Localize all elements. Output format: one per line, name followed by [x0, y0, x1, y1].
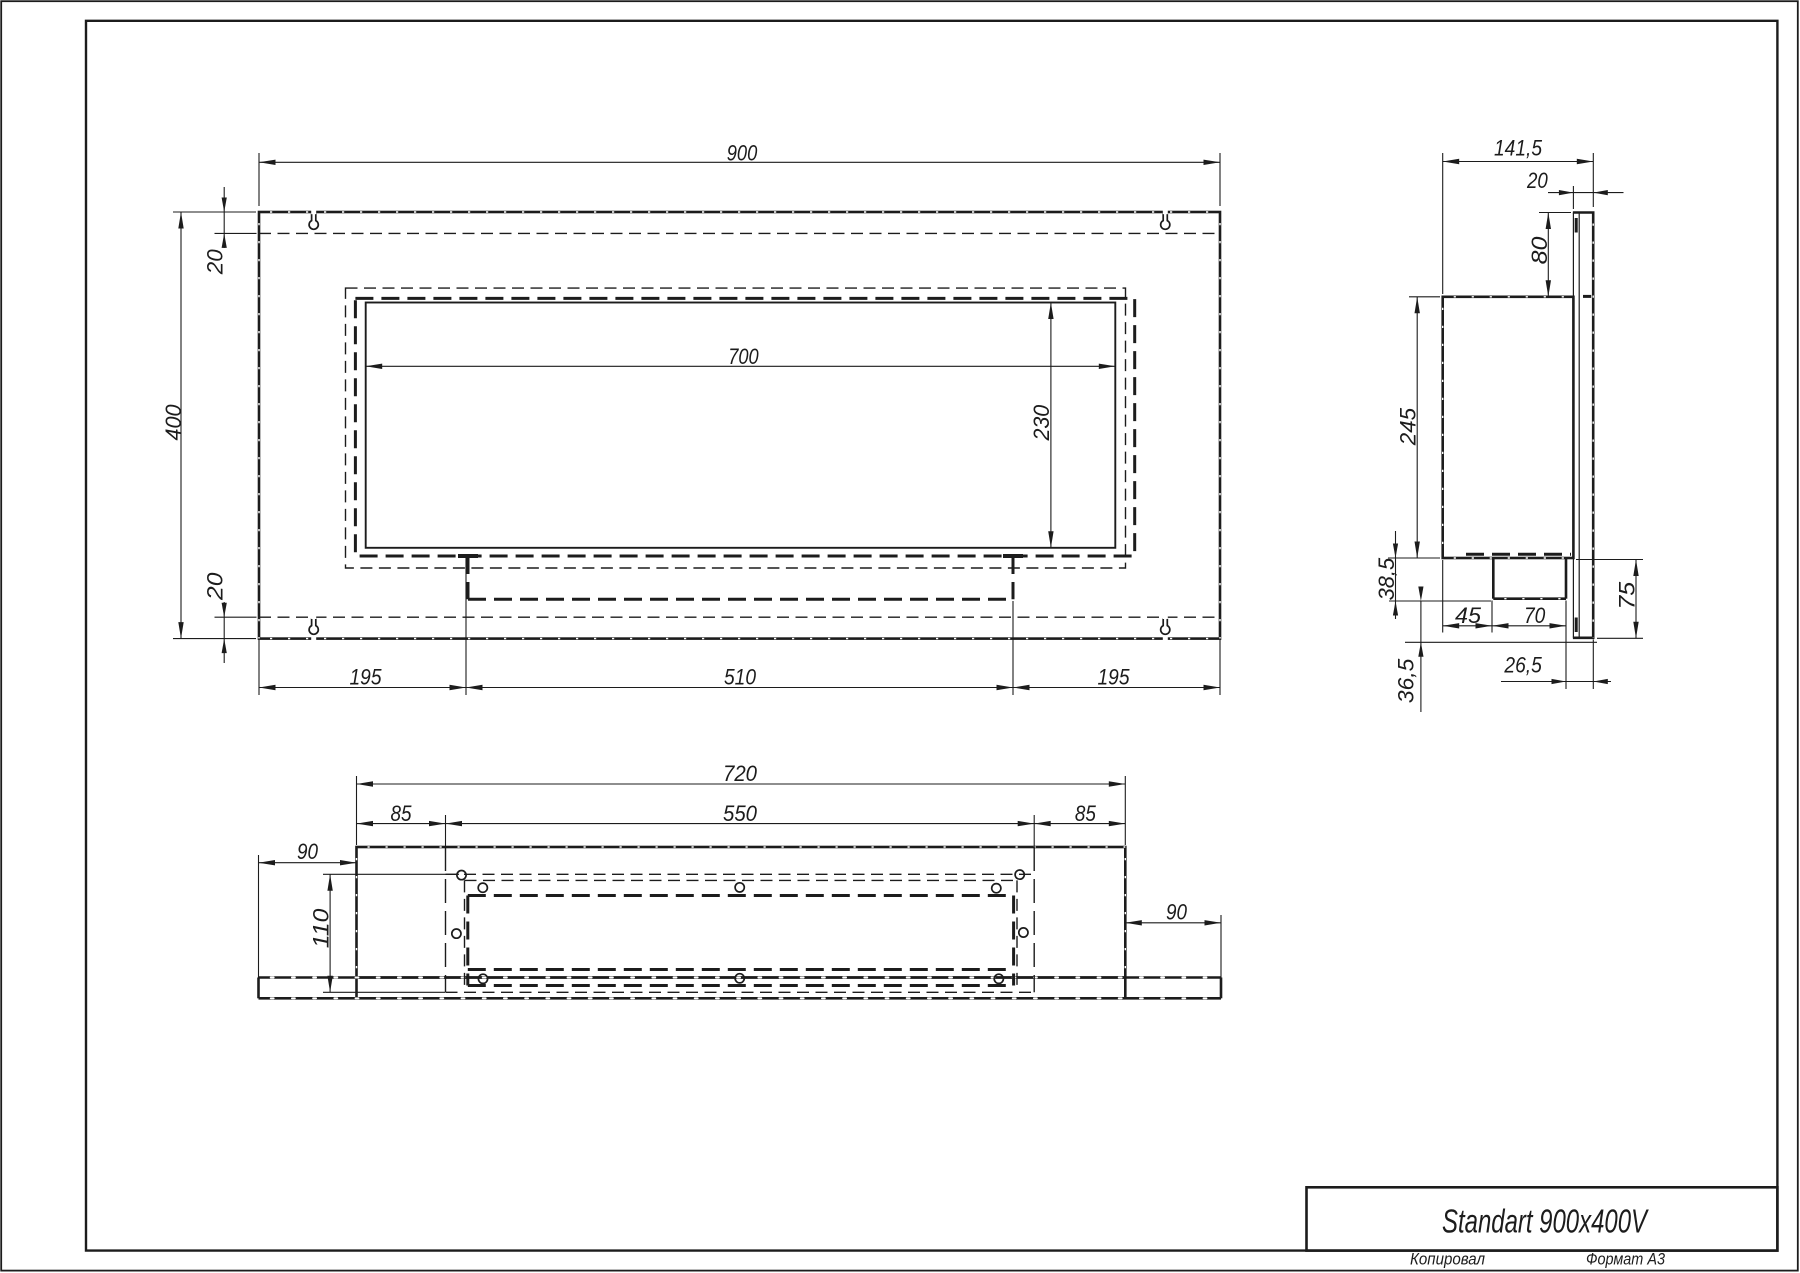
svg-text:85: 85 [391, 801, 412, 826]
svg-text:70: 70 [1524, 603, 1546, 628]
svg-text:900: 900 [727, 140, 758, 165]
svg-text:141,5: 141,5 [1494, 135, 1542, 160]
svg-text:20: 20 [1526, 168, 1548, 193]
svg-text:195: 195 [1098, 665, 1130, 690]
svg-text:245: 245 [1396, 408, 1421, 447]
svg-text:Копировал: Копировал [1410, 1250, 1485, 1268]
svg-text:195: 195 [350, 665, 382, 690]
svg-text:110: 110 [308, 908, 333, 948]
svg-text:75: 75 [1614, 581, 1639, 609]
svg-text:26,5: 26,5 [1504, 652, 1543, 677]
svg-text:20: 20 [203, 572, 228, 601]
svg-text:38,5: 38,5 [1374, 557, 1399, 600]
svg-text:510: 510 [724, 665, 756, 690]
svg-text:85: 85 [1075, 801, 1096, 826]
svg-text:Формат А3: Формат А3 [1586, 1250, 1666, 1268]
svg-text:90: 90 [297, 839, 318, 864]
svg-text:90: 90 [1166, 900, 1187, 925]
svg-text:20: 20 [203, 249, 228, 275]
svg-text:Standart 900x400V: Standart 900x400V [1442, 1203, 1649, 1240]
svg-text:550: 550 [723, 801, 757, 826]
svg-text:80: 80 [1527, 236, 1552, 264]
svg-text:400: 400 [161, 404, 186, 440]
svg-text:230: 230 [1029, 404, 1054, 441]
svg-text:700: 700 [728, 344, 759, 369]
svg-text:720: 720 [723, 761, 757, 786]
svg-text:45: 45 [1455, 603, 1482, 628]
svg-text:36,5: 36,5 [1394, 658, 1419, 703]
